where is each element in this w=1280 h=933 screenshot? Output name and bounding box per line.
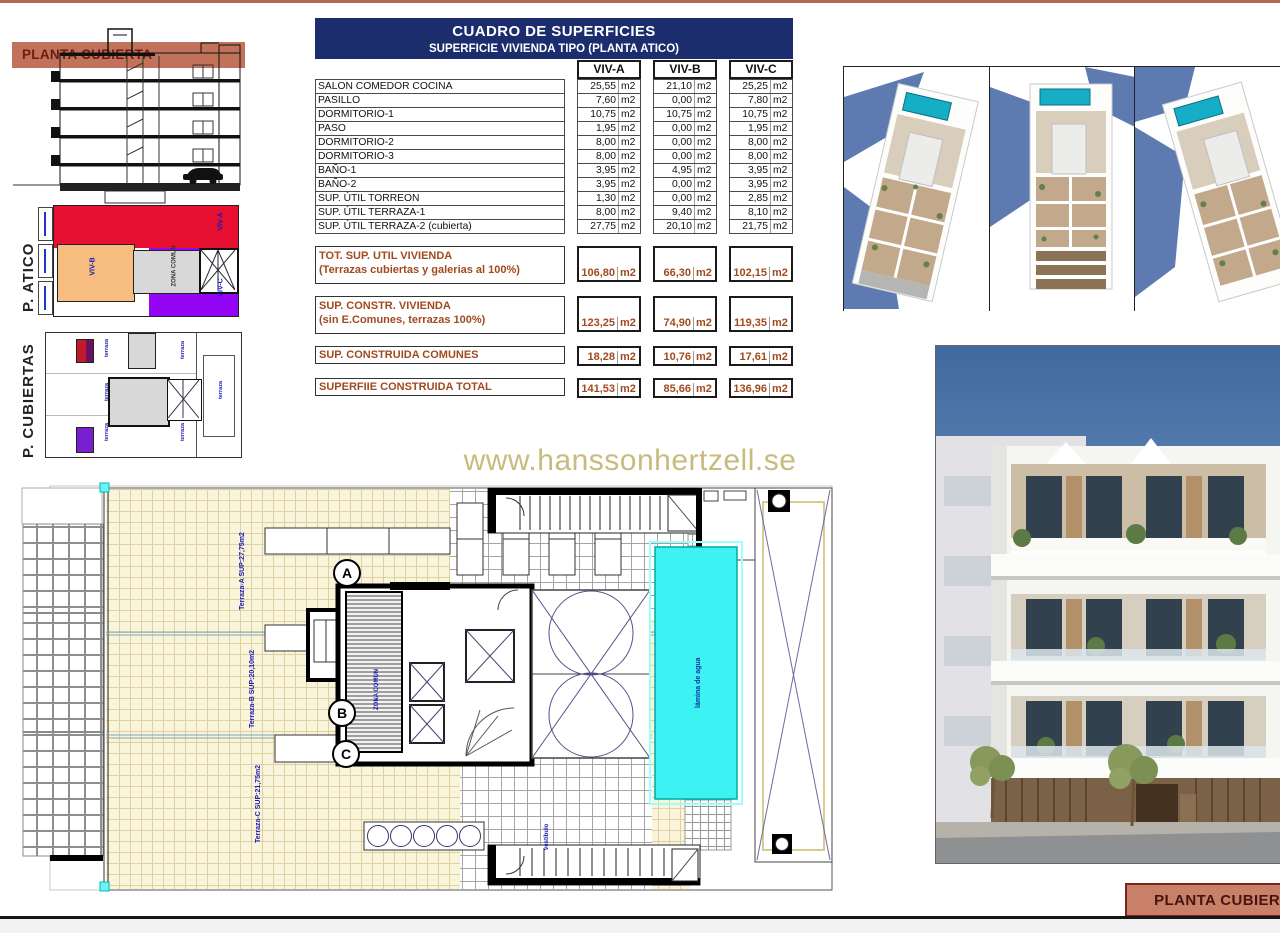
row-value-a: 27,75m2 bbox=[577, 219, 641, 234]
row-value-c: 8,00m2 bbox=[729, 135, 793, 150]
lobby-label: vestíbulo bbox=[544, 823, 550, 850]
p-atico-color-plan: VIV-B ZONA COMUN VIV-A VIV-C bbox=[38, 205, 240, 317]
top-border-rule bbox=[0, 0, 1280, 3]
section-line-art bbox=[5, 15, 305, 215]
surface-table-header: CUADRO DE SUPERFICIES SUPERFICIE VIVIEND… bbox=[315, 18, 793, 59]
table-row: SUP. ÚTIL TERRAZA-1 8,00m2 9,40m2 8,10m2 bbox=[315, 205, 793, 220]
row-value-b: 0,00m2 bbox=[653, 191, 717, 206]
row-value-c: 10,75m2 bbox=[729, 107, 793, 122]
row-label: PASILLO bbox=[315, 93, 565, 108]
row-value-c: 8,10m2 bbox=[729, 205, 793, 220]
table-subtitle: SUPERFICIE VIVIENDA TIPO (PLANTA ATICO) bbox=[315, 43, 793, 55]
right-light-shaft bbox=[755, 488, 832, 862]
row-value-b: 10,75m2 bbox=[653, 107, 717, 122]
p-cubiertas-plan: terraza terraza terraza terraza terraza … bbox=[45, 332, 242, 458]
atico-common-label: ZONA COMUN bbox=[172, 245, 178, 286]
row-value-b: 0,00m2 bbox=[653, 121, 717, 136]
row-value-c: 21,75m2 bbox=[729, 219, 793, 234]
col-viv-b: VIV-B bbox=[653, 60, 717, 79]
row-label: SUP. ÚTIL TORREON bbox=[315, 191, 565, 206]
aerial-render-1 bbox=[843, 67, 989, 311]
row-value-a: 10,75m2 bbox=[577, 107, 641, 122]
surface-table: CUADRO DE SUPERFICIES SUPERFICIE VIVIEND… bbox=[315, 18, 793, 398]
row-value-c: 2,85m2 bbox=[729, 191, 793, 206]
row-value-b: 21,10m2 bbox=[653, 79, 717, 94]
summary-constr-vivienda: SUP. CONSTR. VIVIENDA(sin E.Comunes, ter… bbox=[315, 296, 793, 334]
table-row: BAÑO-2 3,95m2 0,00m2 3,95m2 bbox=[315, 177, 793, 192]
cubiertas-core bbox=[108, 377, 170, 427]
row-value-c: 7,80m2 bbox=[729, 93, 793, 108]
sheet-title-box: PLANTA CUBIERTA bbox=[1125, 883, 1280, 917]
p-atico-side-label: P. ATICO bbox=[20, 243, 37, 312]
car-silhouette bbox=[183, 168, 223, 185]
stair-letter-a: A bbox=[342, 565, 352, 581]
row-value-c: 3,95m2 bbox=[729, 163, 793, 178]
summary-constr-comunes: SUP. CONSTRUIDA COMUNES 18,28m2 10,76m2 … bbox=[315, 346, 793, 366]
row-value-b: 0,00m2 bbox=[653, 93, 717, 108]
core-label: ZONA COMUN bbox=[374, 669, 380, 710]
row-label: DORMITORIO-1 bbox=[315, 107, 565, 122]
aerial-render-3 bbox=[1134, 67, 1280, 311]
cubiertas-terraza-label: terraza bbox=[180, 423, 186, 441]
table-row: SUP. ÚTIL TERRAZA-2 (cubierta) 27,75m2 2… bbox=[315, 219, 793, 234]
stair-letter-b: B bbox=[337, 705, 347, 721]
table-body: SALON COMEDOR COCINA 25,55m2 21,10m2 25,… bbox=[315, 79, 793, 234]
col-viv-a: VIV-A bbox=[577, 60, 641, 79]
row-value-a: 8,00m2 bbox=[577, 135, 641, 150]
row-label: SUP. ÚTIL TERRAZA-1 bbox=[315, 205, 565, 220]
row-value-a: 8,00m2 bbox=[577, 149, 641, 164]
table-title: CUADRO DE SUPERFICIES bbox=[315, 23, 793, 40]
row-value-a: 1,30m2 bbox=[577, 191, 641, 206]
cubiertas-terraza-label: terraza bbox=[104, 339, 110, 357]
row-value-a: 1,95m2 bbox=[577, 121, 641, 136]
building-section-drawing: PLANTA CUBIERTA bbox=[5, 15, 305, 215]
row-value-a: 3,95m2 bbox=[577, 177, 641, 192]
terrace-a-label: Terraza-A SUP:27,75m2 bbox=[239, 532, 246, 610]
sheet-title: PLANTA CUBIERTA bbox=[1154, 892, 1280, 909]
row-value-b: 0,00m2 bbox=[653, 177, 717, 192]
atico-dimension-tabs bbox=[38, 207, 52, 315]
central-core bbox=[308, 582, 532, 764]
cubiertas-terraza-label: terraza bbox=[218, 381, 224, 399]
row-label: SUP. ÚTIL TERRAZA-2 (cubierta) bbox=[315, 219, 565, 234]
table-row: BAÑO-1 3,95m2 4,95m2 3,95m2 bbox=[315, 163, 793, 178]
plan-top-left-bay bbox=[22, 488, 102, 524]
row-label: SALON COMEDOR COCINA bbox=[315, 79, 565, 94]
atico-common-zone: ZONA COMUN bbox=[133, 250, 201, 294]
cubiertas-red-mark bbox=[76, 339, 94, 363]
pergola-grid bbox=[23, 524, 103, 861]
table-row: PASILLO 7,60m2 0,00m2 7,80m2 bbox=[315, 93, 793, 108]
watermark: www.hanssonhertzell.se bbox=[430, 444, 830, 478]
p-cubiertas-side-label: P. CUBIERTAS bbox=[20, 343, 37, 458]
table-row: DORMITORIO-1 10,75m2 10,75m2 10,75m2 bbox=[315, 107, 793, 122]
summary-constr-total: SUPERFIIE CONSTRUIDA TOTAL 141,53m2 85,6… bbox=[315, 378, 793, 398]
row-value-a: 8,00m2 bbox=[577, 205, 641, 220]
summary-total-util: TOT. SUP. UTIL VIVIENDA(Terrazas cubiert… bbox=[315, 246, 793, 284]
row-label: PASO bbox=[315, 121, 565, 136]
atico-viv-a-zone bbox=[54, 206, 238, 248]
atico-viv-a-label: VIV-A bbox=[218, 212, 225, 230]
aerial-render-2 bbox=[989, 67, 1135, 311]
cubiertas-elevator bbox=[167, 379, 202, 421]
atico-viv-b-zone: VIV-B bbox=[57, 244, 135, 302]
table-column-headers: VIV-A VIV-B VIV-C bbox=[315, 60, 793, 79]
table-row: DORMITORIO-2 8,00m2 0,00m2 8,00m2 bbox=[315, 135, 793, 150]
cubiertas-terraza-label: terraza bbox=[180, 341, 186, 359]
row-label: BAÑO-1 bbox=[315, 163, 565, 178]
bottom-stair-block bbox=[488, 845, 700, 885]
cubiertas-purple-mark bbox=[76, 427, 94, 453]
row-value-b: 9,40m2 bbox=[653, 205, 717, 220]
row-value-c: 8,00m2 bbox=[729, 149, 793, 164]
terrace-c-label: Terraza-C SUP:21,75m2 bbox=[255, 765, 262, 843]
atico-viv-b-label: VIV-B bbox=[90, 257, 97, 275]
roof-floor-plan: A B C Terraza-A SUP:27,75m2 Terraza-B SU… bbox=[20, 478, 835, 898]
row-value-a: 3,95m2 bbox=[577, 163, 641, 178]
row-value-b: 0,00m2 bbox=[653, 135, 717, 150]
row-label: BAÑO-2 bbox=[315, 177, 565, 192]
cubiertas-terraza-label: terraza bbox=[104, 423, 110, 441]
cubiertas-terraza-label: terraza bbox=[104, 383, 110, 401]
terrace-b-label: Terraza-B SUP:20,10m2 bbox=[249, 650, 256, 728]
table-row: SALON COMEDOR COCINA 25,55m2 21,10m2 25,… bbox=[315, 79, 793, 94]
top-stair-block bbox=[488, 488, 700, 533]
facade-render-photo bbox=[935, 345, 1280, 864]
row-value-b: 4,95m2 bbox=[653, 163, 717, 178]
col-viv-c: VIV-C bbox=[729, 60, 793, 79]
skylight-block bbox=[532, 590, 650, 758]
planter-row bbox=[364, 822, 484, 850]
row-value-c: 25,25m2 bbox=[729, 79, 793, 94]
row-label: DORMITORIO-3 bbox=[315, 149, 565, 164]
row-value-c: 1,95m2 bbox=[729, 121, 793, 136]
table-row: DORMITORIO-3 8,00m2 0,00m2 8,00m2 bbox=[315, 149, 793, 164]
row-value-b: 0,00m2 bbox=[653, 149, 717, 164]
pool-label: lámina de agua bbox=[695, 657, 702, 708]
table-row: SUP. ÚTIL TORREON 1,30m2 0,00m2 2,85m2 bbox=[315, 191, 793, 206]
stair-letter-c: C bbox=[341, 746, 351, 762]
atico-viv-c-label: VIV-C bbox=[218, 278, 225, 296]
row-value-b: 20,10m2 bbox=[653, 219, 717, 234]
aerial-render-strip bbox=[843, 66, 1280, 311]
row-label: DORMITORIO-2 bbox=[315, 135, 565, 150]
row-value-a: 7,60m2 bbox=[577, 93, 641, 108]
table-row: PASO 1,95m2 0,00m2 1,95m2 bbox=[315, 121, 793, 136]
bottom-margin-strip bbox=[0, 919, 1280, 933]
cubiertas-top-volume bbox=[128, 333, 156, 369]
row-value-c: 3,95m2 bbox=[729, 177, 793, 192]
plan-sheet: PLANTA CUBIERTA bbox=[0, 0, 1280, 933]
corner-deck-patch bbox=[685, 800, 731, 850]
row-value-a: 25,55m2 bbox=[577, 79, 641, 94]
